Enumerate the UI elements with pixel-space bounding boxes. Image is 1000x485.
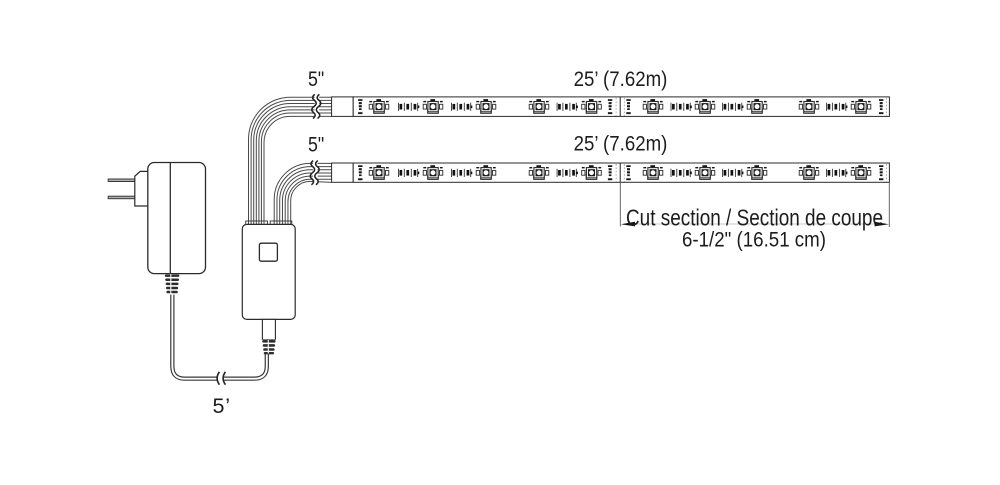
svg-text:5": 5" <box>308 132 324 156</box>
svg-text:25’ (7.62m): 25’ (7.62m) <box>574 67 668 91</box>
svg-text:5": 5" <box>308 67 324 91</box>
svg-text:5’: 5’ <box>213 394 231 418</box>
svg-text:6-1/2" (16.51 cm): 6-1/2" (16.51 cm) <box>682 227 826 251</box>
svg-text:25’ (7.62m): 25’ (7.62m) <box>574 132 668 156</box>
